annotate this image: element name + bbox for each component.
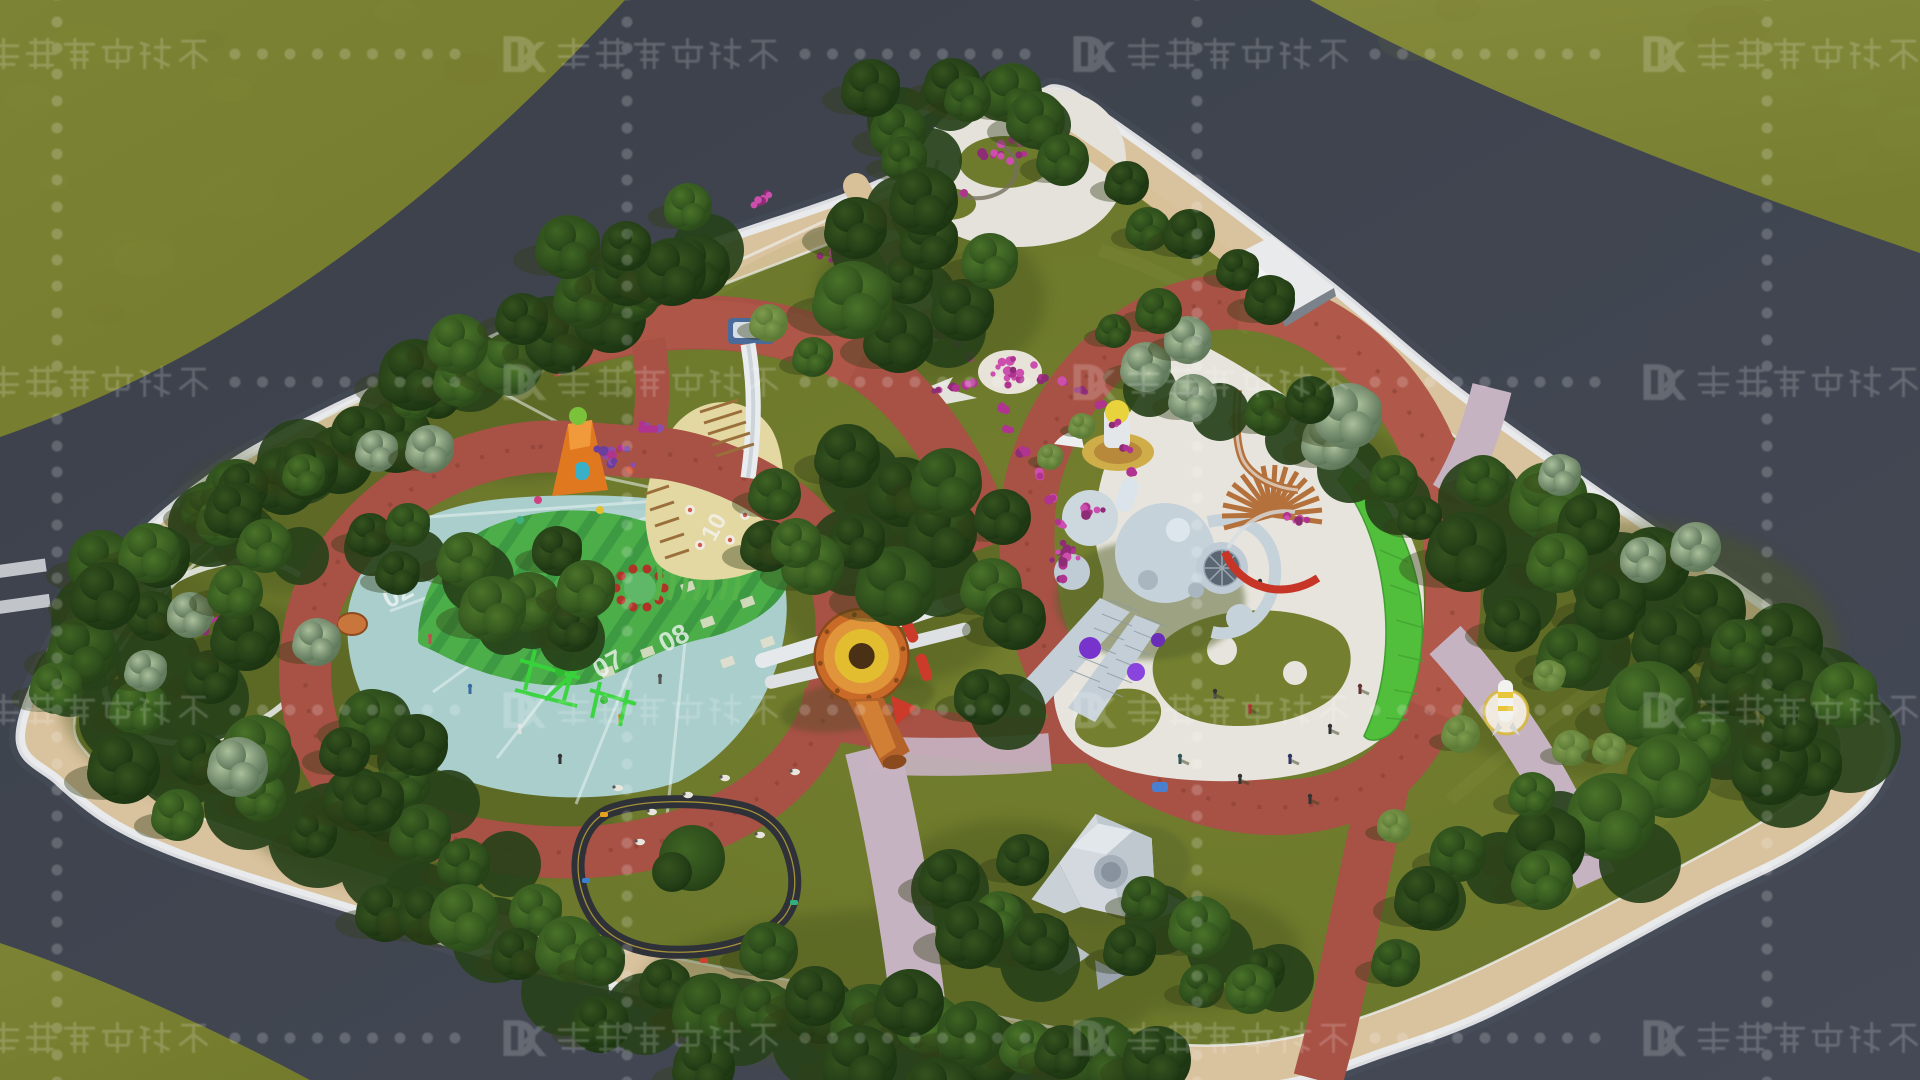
svg-text:K: K [1085, 33, 1117, 82]
svg-text:K: K [1085, 361, 1117, 410]
svg-text:K: K [515, 361, 547, 410]
svg-text:K: K [1655, 1017, 1687, 1066]
svg-text:K: K [1655, 361, 1687, 410]
svg-text:K: K [515, 33, 547, 82]
svg-text:K: K [1085, 689, 1117, 738]
svg-text:K: K [1655, 33, 1687, 82]
svg-text:K: K [1655, 689, 1687, 738]
svg-text:K: K [515, 1017, 547, 1066]
svg-text:K: K [1085, 1017, 1117, 1066]
svg-text:K: K [515, 689, 547, 738]
